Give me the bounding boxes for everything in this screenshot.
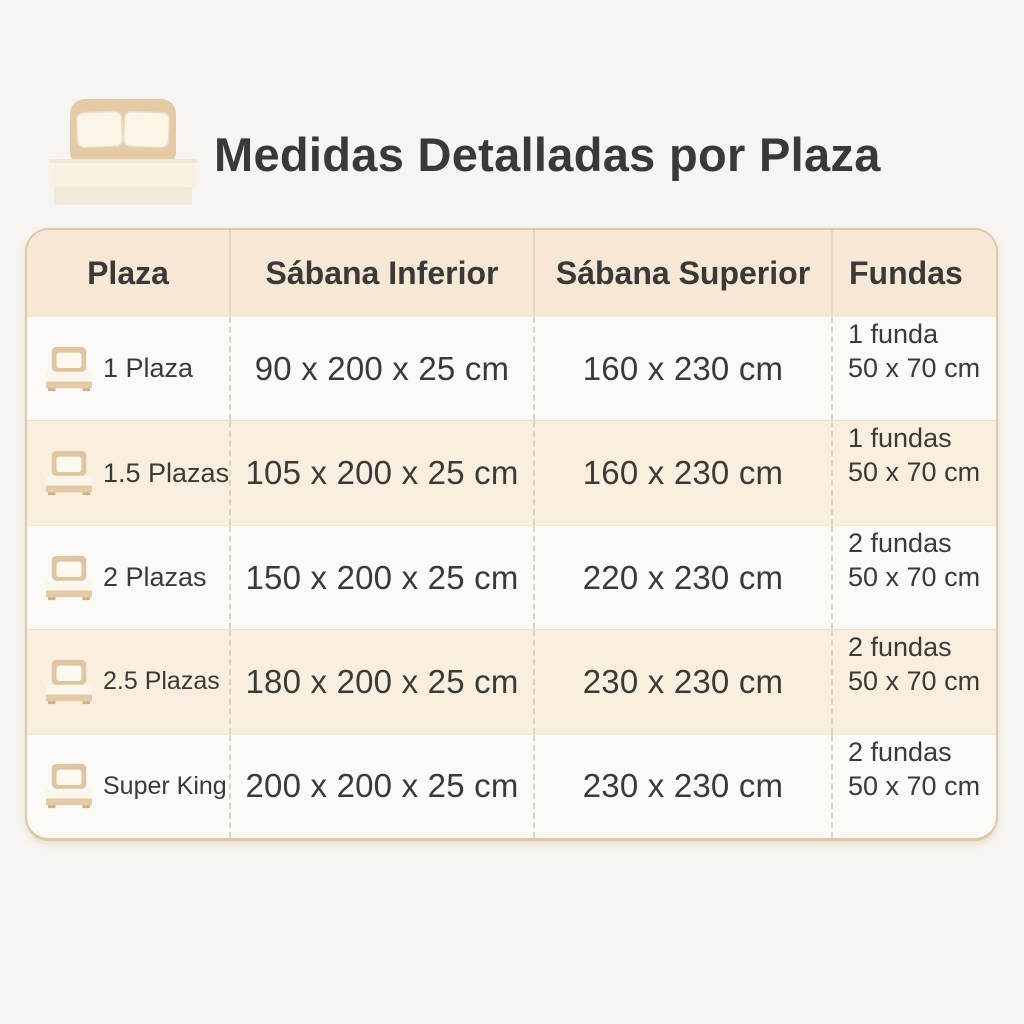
table-row: 2 Plazas 150 x 200 x 25 cm 220 x 230 cm … — [27, 525, 996, 629]
column-header-plaza: Plaza — [27, 230, 229, 316]
sabana-inferior-value: 200 x 200 x 25 cm — [229, 735, 533, 838]
plaza-cell: 1.5 Plazas — [27, 421, 229, 524]
table-row: 1.5 Plazas 105 x 200 x 25 cm 160 x 230 c… — [27, 420, 996, 524]
plaza-label: 1.5 Plazas — [103, 458, 229, 489]
fundas-cell: 1 fundas 50 x 70 cm — [831, 421, 996, 524]
fundas-count: 1 funda — [848, 317, 938, 351]
fundas-count: 2 fundas — [848, 526, 952, 560]
plaza-cell: 1 Plaza — [27, 317, 229, 420]
plaza-cell: 2 Plazas — [27, 526, 229, 629]
fundas-count: 1 fundas — [848, 421, 952, 455]
single-bed-icon — [44, 763, 94, 809]
table-row: 2.5 Plazas 180 x 200 x 25 cm 230 x 230 c… — [27, 629, 996, 733]
page-header: Medidas Detalladas por Plaza — [0, 0, 1024, 228]
sabana-superior-value: 160 x 230 cm — [533, 317, 831, 420]
sizes-table: Plaza Sábana Inferior Sábana Superior Fu… — [25, 228, 998, 841]
column-header-fundas: Fundas — [831, 230, 996, 316]
plaza-label: 2.5 Plazas — [103, 667, 220, 696]
table-header-row: Plaza Sábana Inferior Sábana Superior Fu… — [27, 230, 996, 316]
sabana-superior-value: 160 x 230 cm — [533, 421, 831, 524]
single-bed-icon — [44, 555, 94, 601]
plaza-cell: 2.5 Plazas — [27, 630, 229, 733]
fundas-size: 50 x 70 cm — [848, 351, 980, 385]
fundas-cell: 2 fundas 50 x 70 cm — [831, 630, 996, 733]
table-row: 1 Plaza 90 x 200 x 25 cm 160 x 230 cm 1 … — [27, 316, 996, 420]
fundas-count: 2 fundas — [848, 630, 952, 664]
plaza-label: 1 Plaza — [103, 353, 193, 384]
fundas-size: 50 x 70 cm — [848, 769, 980, 803]
fundas-size: 50 x 70 cm — [848, 455, 980, 489]
single-bed-icon — [44, 659, 94, 705]
sabana-inferior-value: 180 x 200 x 25 cm — [229, 630, 533, 733]
plaza-label: 2 Plazas — [103, 562, 207, 593]
sabana-superior-value: 220 x 230 cm — [533, 526, 831, 629]
double-bed-icon — [48, 97, 198, 207]
fundas-size: 50 x 70 cm — [848, 560, 980, 594]
column-header-sabana-inferior: Sábana Inferior — [229, 230, 533, 316]
fundas-cell: 1 funda 50 x 70 cm — [831, 317, 996, 420]
sabana-superior-value: 230 x 230 cm — [533, 735, 831, 838]
table-row: Super King 200 x 200 x 25 cm 230 x 230 c… — [27, 734, 996, 838]
sabana-inferior-value: 105 x 200 x 25 cm — [229, 421, 533, 524]
sabana-inferior-value: 150 x 200 x 25 cm — [229, 526, 533, 629]
fundas-cell: 2 fundas 50 x 70 cm — [831, 526, 996, 629]
single-bed-icon — [44, 346, 94, 392]
fundas-size: 50 x 70 cm — [848, 664, 980, 698]
fundas-cell: 2 fundas 50 x 70 cm — [831, 735, 996, 838]
fundas-count: 2 fundas — [848, 735, 952, 769]
single-bed-icon — [44, 450, 94, 496]
plaza-label: Super King — [103, 772, 227, 801]
sabana-superior-value: 230 x 230 cm — [533, 630, 831, 733]
page-title: Medidas Detalladas por Plaza — [214, 127, 881, 182]
sabana-inferior-value: 90 x 200 x 25 cm — [229, 317, 533, 420]
plaza-cell: Super King — [27, 735, 229, 838]
column-header-sabana-superior: Sábana Superior — [533, 230, 831, 316]
